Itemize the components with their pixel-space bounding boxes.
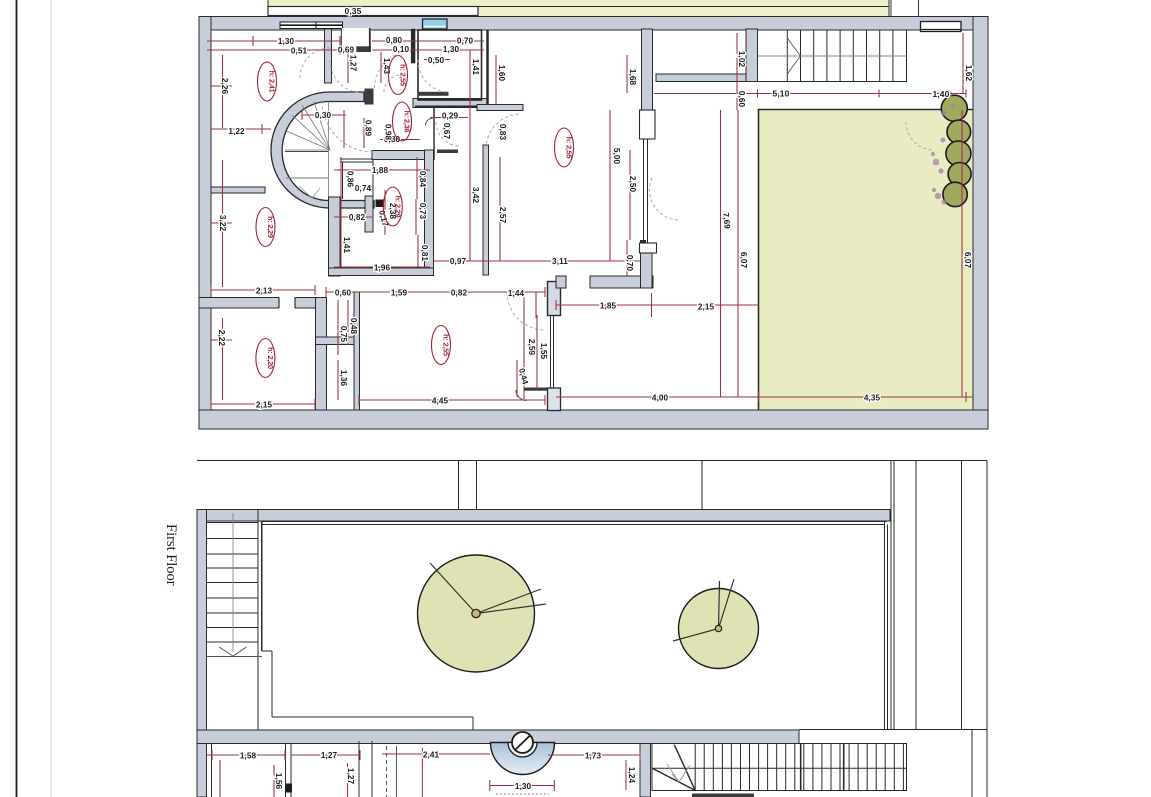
svg-text:1,24: 1,24 <box>627 767 636 784</box>
svg-text:1,44: 1,44 <box>508 289 525 298</box>
svg-text:1,56: 1,56 <box>274 773 283 790</box>
svg-text:5,00: 5,00 <box>612 148 621 165</box>
svg-text:1,30: 1,30 <box>443 45 460 54</box>
svg-text:h: 2,29: h: 2,29 <box>393 196 402 218</box>
svg-text:0,74: 0,74 <box>355 184 372 193</box>
svg-text:0,10: 0,10 <box>393 45 410 54</box>
svg-text:1,27: 1,27 <box>349 55 358 72</box>
svg-text:First Floor: First Floor <box>163 524 179 586</box>
svg-text:7,69: 7,69 <box>721 212 731 229</box>
svg-text:2,57: 2,57 <box>498 207 507 224</box>
svg-text:0,70: 0,70 <box>457 37 474 46</box>
svg-text:0,98: 0,98 <box>384 124 393 141</box>
svg-text:6,07: 6,07 <box>739 252 748 269</box>
svg-text:0,70: 0,70 <box>625 255 634 272</box>
svg-text:0,80: 0,80 <box>386 36 403 45</box>
svg-text:0,89: 0,89 <box>364 120 373 137</box>
svg-text:1,88: 1,88 <box>372 166 389 175</box>
svg-text:2,59: 2,59 <box>527 339 536 356</box>
svg-text:1,22: 1,22 <box>228 127 245 136</box>
svg-text:1,68: 1,68 <box>628 69 637 86</box>
svg-text:1,40: 1,40 <box>933 89 950 99</box>
svg-text:3,42: 3,42 <box>471 187 480 204</box>
svg-text:4,45: 4,45 <box>432 397 449 406</box>
svg-text:1,60: 1,60 <box>497 65 506 82</box>
svg-text:4,35: 4,35 <box>864 394 881 403</box>
svg-text:0,81: 0,81 <box>420 245 429 262</box>
svg-text:0,30: 0,30 <box>315 111 332 120</box>
svg-text:0,75: 0,75 <box>339 326 348 343</box>
svg-text:1,27: 1,27 <box>321 751 338 760</box>
svg-text:0,84: 0,84 <box>418 171 427 188</box>
svg-text:h: 2,55: h: 2,55 <box>399 64 408 86</box>
svg-text:1,58: 1,58 <box>240 752 257 761</box>
svg-text:0,86: 0,86 <box>346 171 355 188</box>
svg-text:h: 2,36: h: 2,36 <box>403 111 412 133</box>
svg-text:3,11: 3,11 <box>552 257 568 266</box>
svg-text:0,83: 0,83 <box>498 124 507 141</box>
svg-text:0,48: 0,48 <box>349 318 358 335</box>
svg-text:0,69: 0,69 <box>338 46 355 55</box>
svg-text:1,30: 1,30 <box>278 37 295 46</box>
svg-text:1,36: 1,36 <box>339 370 348 387</box>
svg-text:1,85: 1,85 <box>600 302 617 311</box>
svg-text:5,10: 5,10 <box>773 89 790 99</box>
svg-text:4,00: 4,00 <box>652 394 669 403</box>
svg-text:0,82: 0,82 <box>451 289 468 298</box>
svg-text:0,82: 0,82 <box>349 213 366 222</box>
svg-text:1,30: 1,30 <box>515 782 532 791</box>
svg-text:2,50: 2,50 <box>628 176 637 193</box>
svg-text:2,41: 2,41 <box>423 751 440 760</box>
svg-text:1,73: 1,73 <box>585 752 602 761</box>
svg-text:0,50: 0,50 <box>428 56 445 65</box>
svg-text:6,07: 6,07 <box>963 252 972 269</box>
svg-text:3,22: 3,22 <box>218 215 227 232</box>
svg-text:0,29: 0,29 <box>442 112 459 121</box>
svg-text:2,15: 2,15 <box>256 401 273 410</box>
svg-text:1,59: 1,59 <box>391 289 408 298</box>
svg-text:h: 2,29: h: 2,29 <box>266 216 275 238</box>
svg-text:1,27: 1,27 <box>346 768 355 785</box>
svg-text:0,51: 0,51 <box>291 47 308 56</box>
svg-text:2,15: 2,15 <box>698 303 715 312</box>
svg-text:0,60: 0,60 <box>737 91 746 108</box>
svg-text:0,35: 0,35 <box>345 6 362 16</box>
svg-text:1,02: 1,02 <box>737 51 746 68</box>
svg-text:0,97: 0,97 <box>450 257 467 266</box>
svg-text:h: 2,20: h: 2,20 <box>266 347 275 369</box>
svg-text:1,41: 1,41 <box>471 59 480 76</box>
svg-text:0,60: 0,60 <box>335 289 352 298</box>
svg-text:1,96: 1,96 <box>374 264 391 273</box>
svg-text:1,62: 1,62 <box>964 65 973 82</box>
svg-text:0,73: 0,73 <box>418 203 427 220</box>
svg-text:2,26: 2,26 <box>220 78 229 95</box>
svg-text:h: 2,55: h: 2,55 <box>565 137 574 159</box>
svg-text:h: 2,55: h: 2,55 <box>442 334 451 356</box>
svg-text:2,13: 2,13 <box>256 287 273 296</box>
svg-text:2,22: 2,22 <box>217 330 226 347</box>
svg-text:1,41: 1,41 <box>342 237 351 254</box>
svg-text:0,67: 0,67 <box>442 123 451 140</box>
svg-text:1,55: 1,55 <box>539 343 548 360</box>
svg-text:h: 2,41: h: 2,41 <box>268 71 277 93</box>
